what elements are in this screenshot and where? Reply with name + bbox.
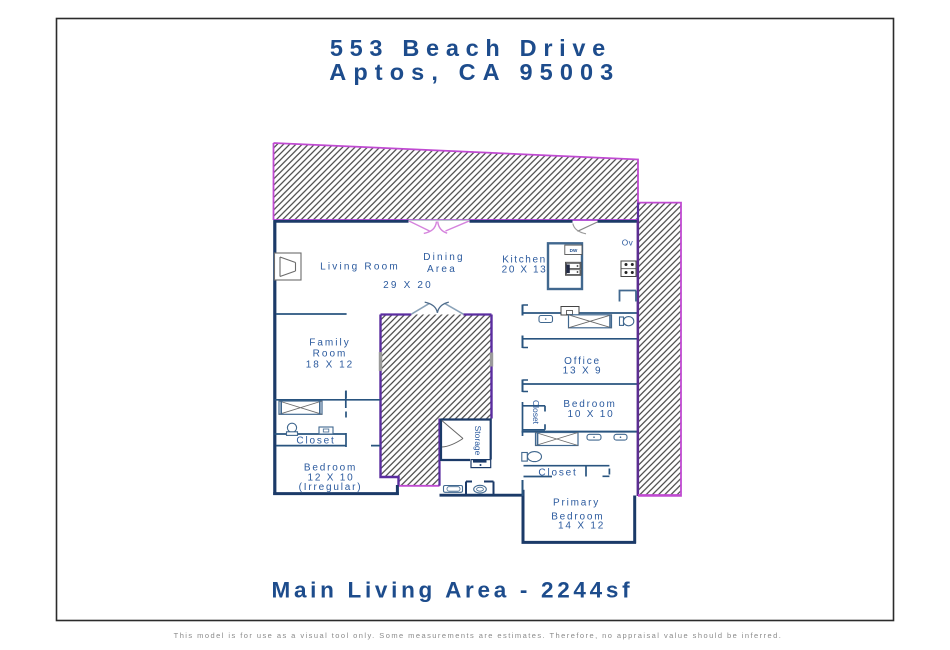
svg-text:Area: Area [427, 264, 457, 275]
svg-text:29 X 20: 29 X 20 [383, 280, 433, 291]
svg-text:This model is for use as a vis: This model is for use as a visual tool o… [174, 631, 783, 640]
svg-text:Aptos, CA 95003: Aptos, CA 95003 [329, 59, 620, 85]
svg-text:20 X 13: 20 X 13 [502, 265, 548, 276]
svg-text:Primary: Primary [553, 498, 600, 509]
svg-text:Family: Family [309, 338, 350, 349]
svg-text:Closet: Closet [538, 468, 577, 479]
svg-text:(Irregular): (Irregular) [299, 482, 363, 493]
svg-text:Main Living Area - 2244sf: Main Living Area - 2244sf [272, 578, 634, 603]
svg-text:Closet: Closet [296, 436, 335, 447]
svg-text:13 X 9: 13 X 9 [563, 366, 603, 377]
svg-text:10 X 10: 10 X 10 [567, 409, 614, 420]
svg-text:Living Room: Living Room [320, 262, 400, 273]
svg-text:Storage: Storage [473, 426, 483, 456]
svg-text:18 X 12: 18 X 12 [306, 360, 354, 371]
svg-text:14 X 12: 14 X 12 [558, 520, 605, 531]
svg-text:DW: DW [570, 248, 578, 253]
svg-text:Closet: Closet [531, 400, 541, 425]
svg-text:Room: Room [313, 349, 348, 360]
svg-text:Ov: Ov [622, 237, 634, 247]
svg-text:553 Beach Drive: 553 Beach Drive [330, 35, 612, 61]
svg-text:Dining: Dining [423, 252, 465, 263]
